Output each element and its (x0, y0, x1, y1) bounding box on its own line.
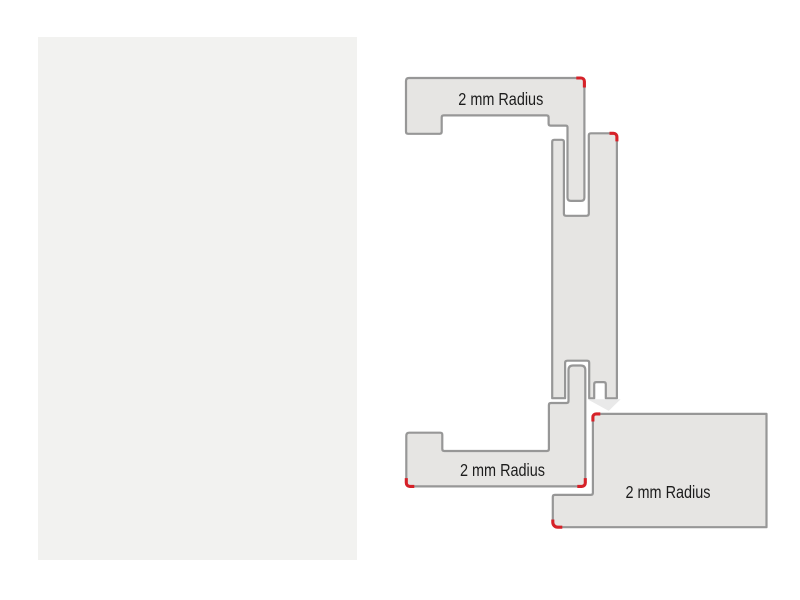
svg-text:2 mm Radius: 2 mm Radius (626, 482, 711, 502)
svg-text:2 mm Radius: 2 mm Radius (460, 460, 545, 480)
svg-text:2 mm Radius: 2 mm Radius (458, 89, 543, 109)
